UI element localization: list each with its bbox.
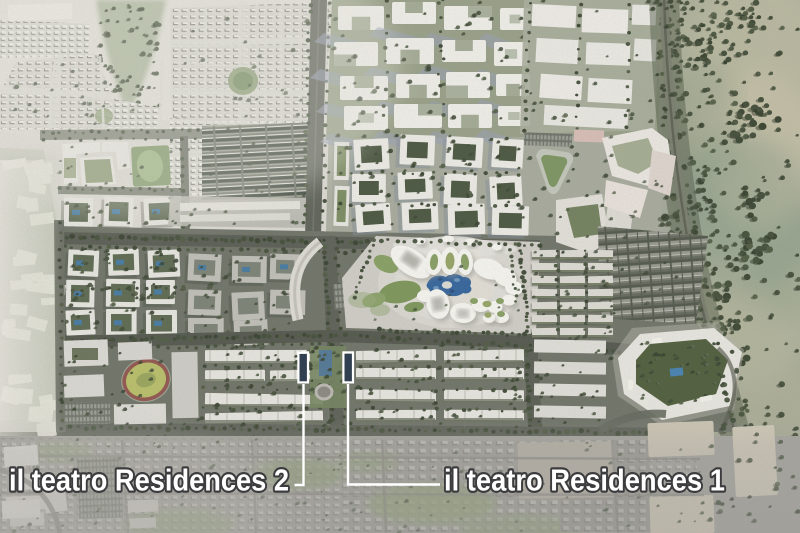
svg-text:il teatro Residences 2: il teatro Residences 2	[9, 463, 289, 498]
svg-text:il teatro Residences 1: il teatro Residences 1	[444, 463, 725, 498]
